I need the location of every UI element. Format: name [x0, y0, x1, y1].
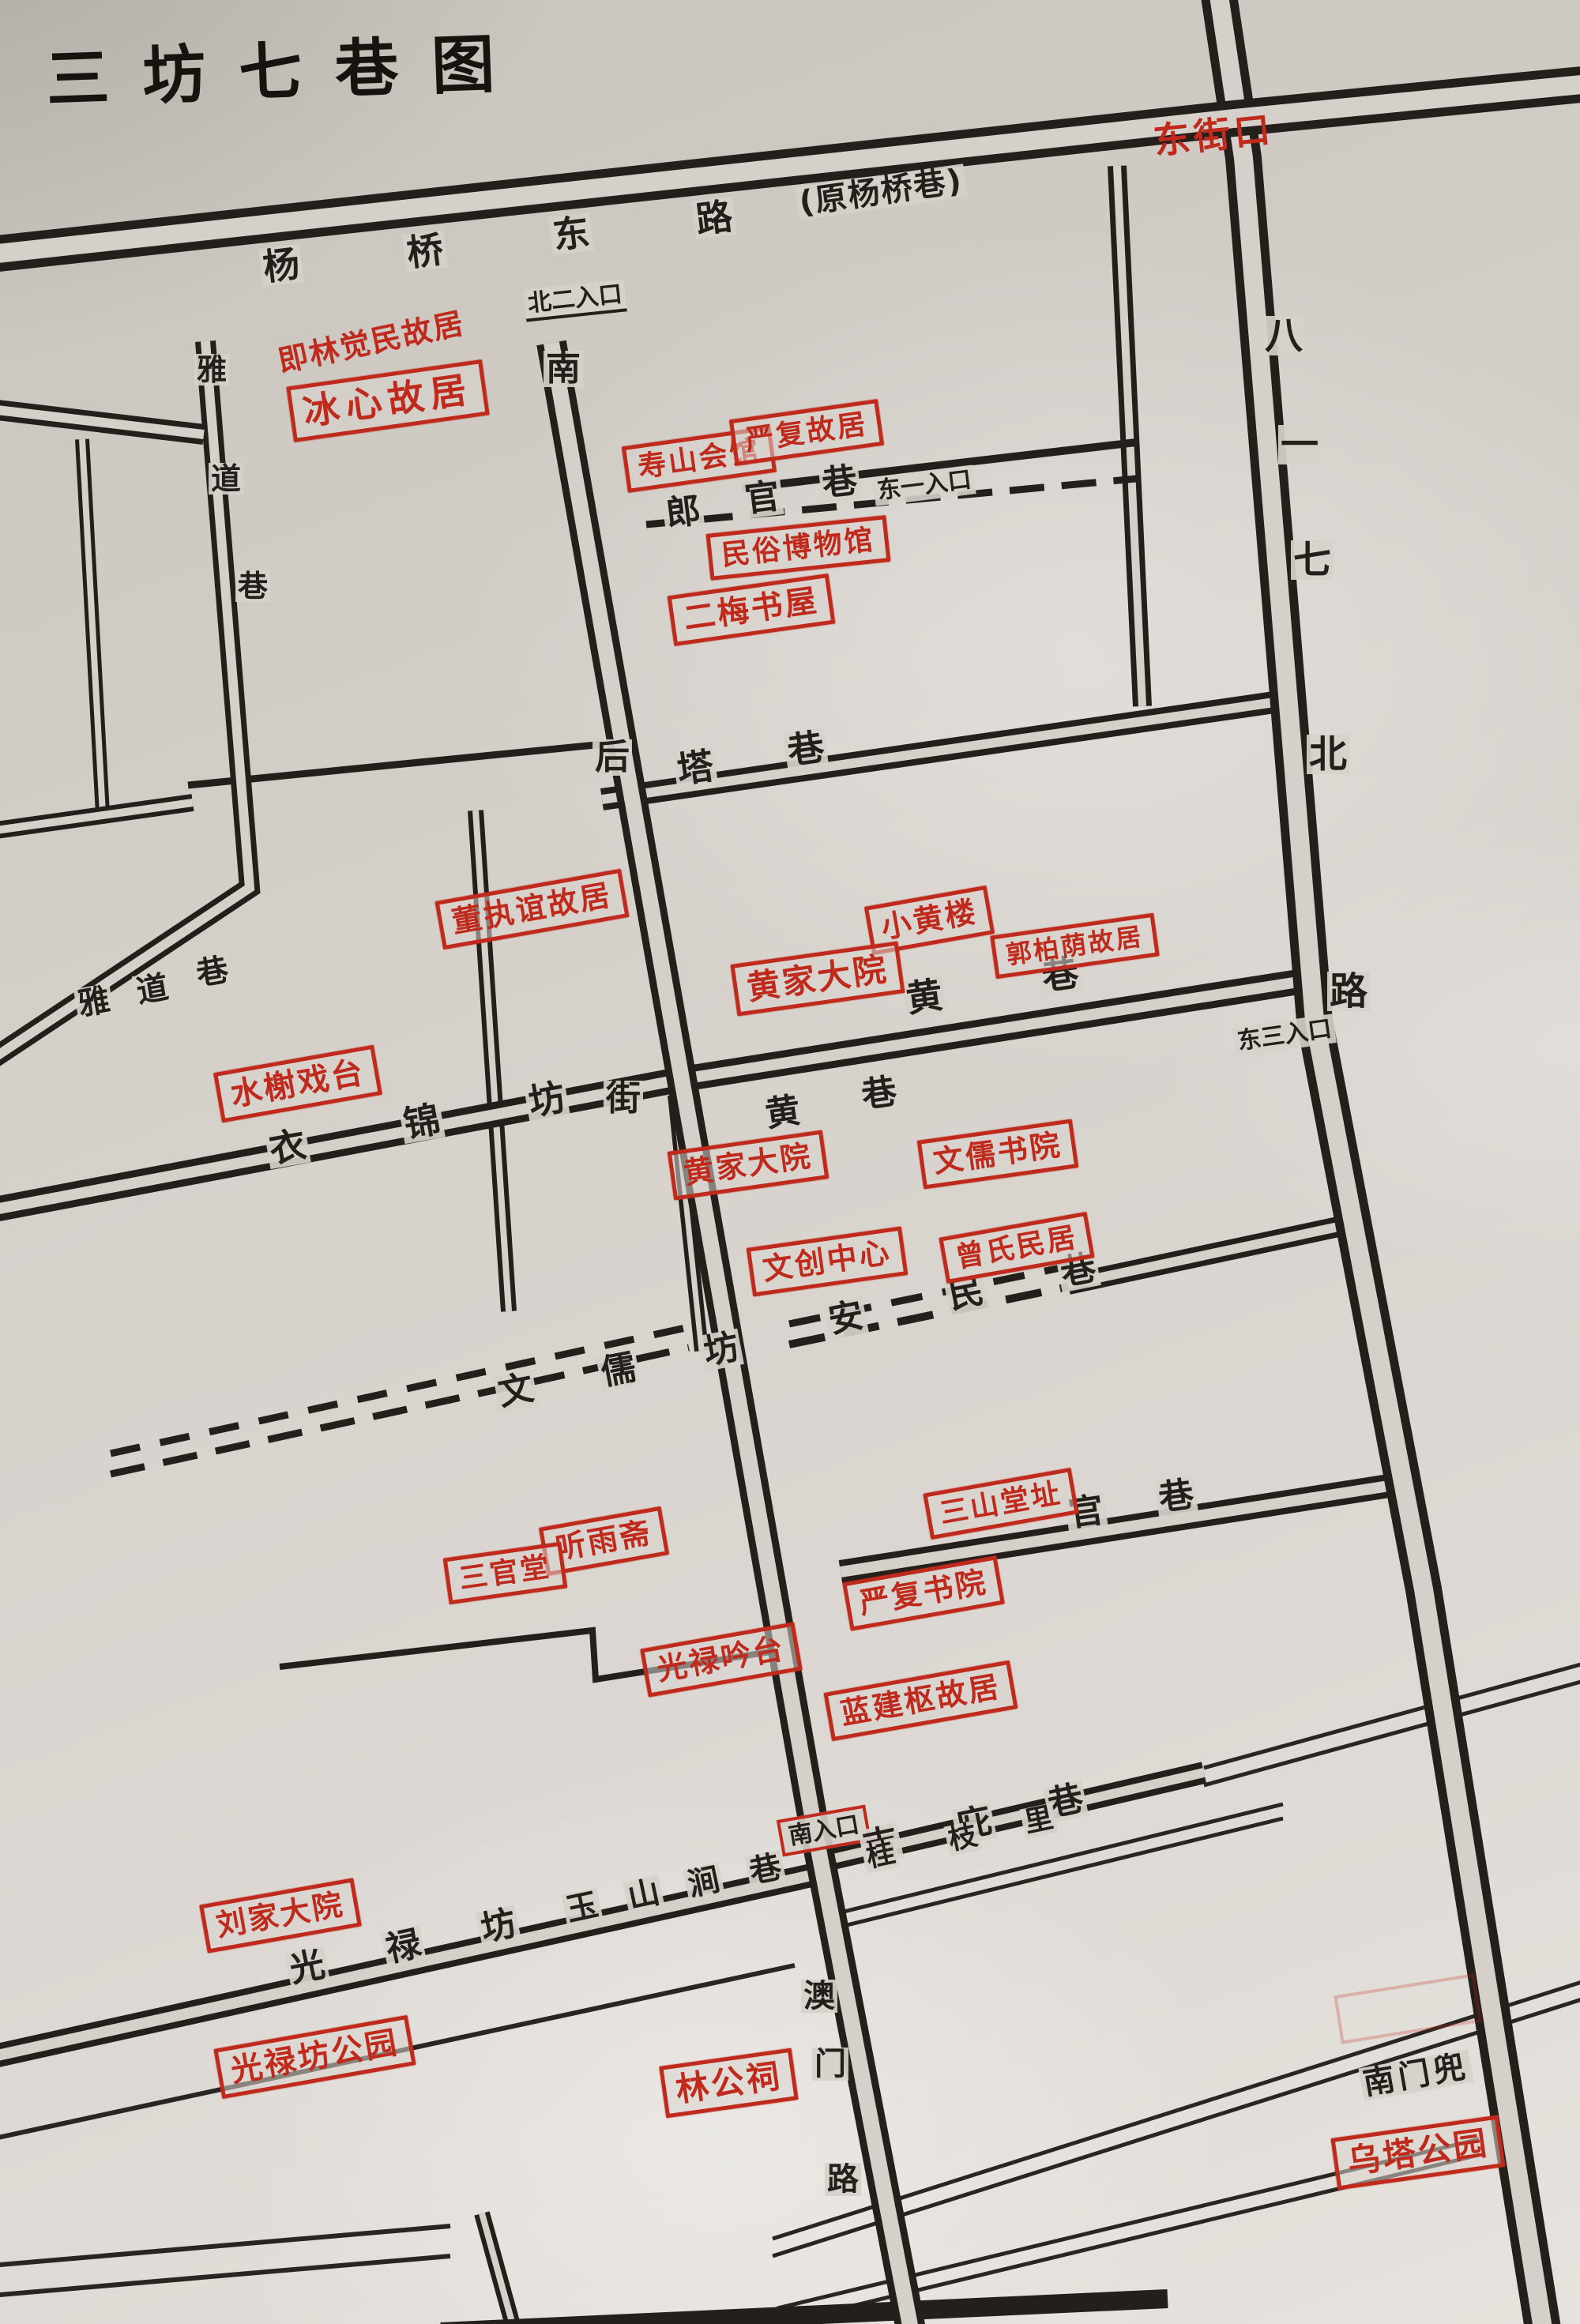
paper-background: 三坊七巷图 杨 桥 东 路 (原杨桥巷) 东街口 八 一 七 北 路 北二入口 … [0, 0, 1580, 2324]
street-char-ta-1: 巷 [783, 728, 829, 771]
street-char-aomen-0: 澳 [801, 1980, 837, 2013]
street-char-wenru-0: 文 [493, 1370, 539, 1413]
street-char-wenru-2: 坊 [698, 1329, 744, 1372]
bottom-line-2 [0, 2256, 450, 2296]
street-char-langguan-1: 官 [740, 478, 784, 519]
street-char-yangqiao-2: 东 [548, 212, 593, 255]
street-char-nanhoujie-1: 后 [592, 739, 632, 776]
jibi-extension-2 [1204, 1679, 1580, 1785]
street-char-aomen-1: 门 [812, 2048, 848, 2081]
street-char-yijin-1: 锦 [398, 1100, 446, 1144]
street-char-yangqiao-3: 路 [691, 197, 736, 239]
street-char-bayiqi-4: 路 [1327, 972, 1370, 1011]
street-char-guizhili-0: 桂 [862, 1837, 901, 1874]
street-char-nanhoujie-0: 南 [544, 351, 583, 387]
street-char-nanhoujie-2: 街 [604, 1081, 643, 1117]
street-char-anmin-0: 安 [823, 1297, 869, 1341]
street-char-langguan-0: 郎 [661, 492, 705, 533]
street-char-yushanjian-2: 涧 [683, 1863, 725, 1903]
street-char-aomen-2: 路 [825, 2163, 861, 2196]
street-char-huang-b-1: 巷 [857, 1074, 901, 1115]
street-char-yijin-2: 坊 [523, 1077, 570, 1122]
street-char-yushanjian-3: 巷 [744, 1850, 787, 1890]
street-char-guizhili-1: 枝 [944, 1820, 983, 1856]
street-char-guanglufang-0: 光 [284, 1946, 330, 1989]
street-char-yadao-v-0: 雅 [194, 354, 229, 385]
street-char-yadao-d-1: 道 [132, 970, 174, 1009]
street-char-huang-b-0: 黄 [761, 1092, 805, 1134]
street-char-wenru-1: 儒 [596, 1349, 641, 1393]
street-char-guan-1: 巷 [1154, 1476, 1198, 1518]
map-title: 三坊七巷图 [44, 12, 529, 120]
street-char-yushanjian-0: 玉 [561, 1888, 604, 1928]
street-char-yangqiao-0: 杨 [258, 244, 303, 287]
jibi-extension-1 [1204, 1662, 1580, 1768]
street-char-bayiqi-1: 一 [1278, 425, 1321, 464]
street-char-yadao-d-2: 巷 [192, 953, 234, 991]
street-char-guizhili-2: 里 [1020, 1803, 1059, 1839]
street-char-ta-0: 塔 [672, 746, 718, 790]
street-char-yijin-0: 衣 [264, 1125, 311, 1169]
street-char-langguan-2: 巷 [818, 462, 861, 503]
street-char-bayiqi-0: 八 [1262, 316, 1305, 355]
street-char-bayiqi-3: 北 [1307, 735, 1349, 774]
street-char-huang-a-0: 黄 [901, 976, 947, 1019]
street-char-yadao-v-2: 巷 [235, 570, 270, 602]
street-char-guanglufang-2: 坊 [476, 1905, 521, 1948]
street-char-yangqiao-1: 桥 [402, 230, 447, 273]
street-char-guanglufang-1: 禄 [381, 1925, 427, 1969]
street-char-yushanjian-1: 山 [623, 1875, 665, 1916]
street-char-bayiqi-2: 七 [1291, 540, 1334, 580]
street-char-yadao-d-0: 雅 [73, 983, 115, 1021]
street-char-yadao-v-1: 道 [209, 463, 243, 495]
